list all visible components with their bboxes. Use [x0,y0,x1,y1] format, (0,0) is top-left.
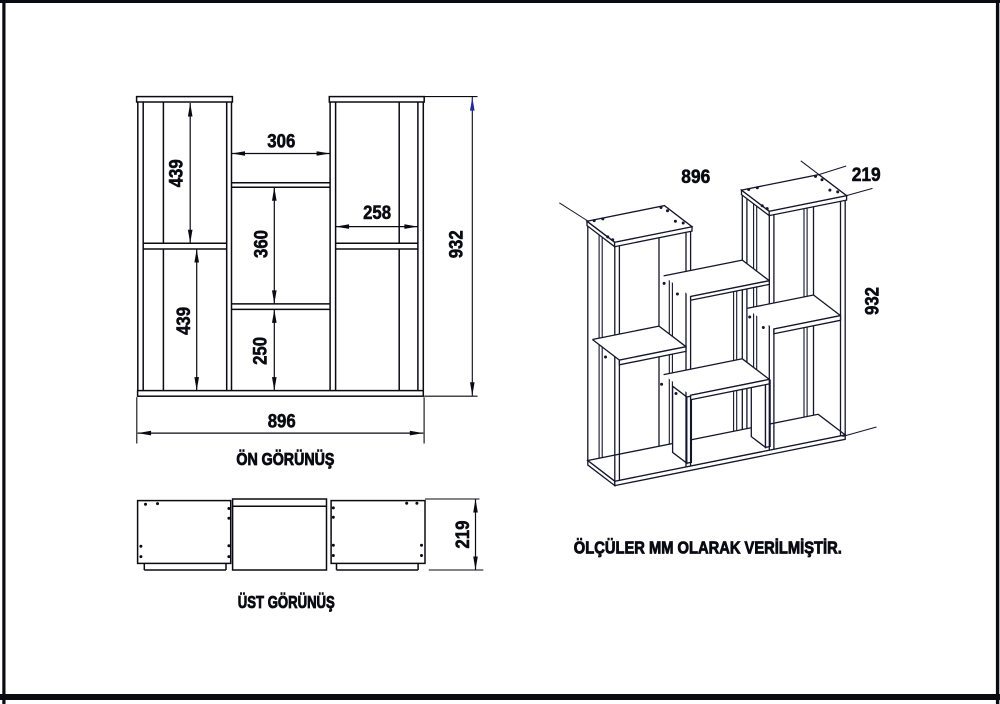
svg-text:ÖLÇÜLER MM OLARAK VERİLMİŞTİR.: ÖLÇÜLER MM OLARAK VERİLMİŞTİR. [574,537,842,557]
svg-text:896: 896 [681,167,710,188]
svg-text:258: 258 [363,203,391,224]
svg-text:360: 360 [251,230,272,258]
svg-text:250: 250 [250,337,271,365]
svg-text:932: 932 [862,287,883,315]
svg-text:306: 306 [267,131,295,152]
svg-text:439: 439 [174,307,195,335]
svg-text:219: 219 [852,165,881,186]
svg-text:932: 932 [447,230,468,258]
svg-text:219: 219 [453,521,474,549]
svg-text:439: 439 [167,159,188,187]
svg-text:ÖN GÖRÜNÜŞ: ÖN GÖRÜNÜŞ [236,449,334,469]
svg-text:896: 896 [268,412,296,433]
svg-text:ÜST GÖRÜNÜŞ: ÜST GÖRÜNÜŞ [238,592,335,612]
